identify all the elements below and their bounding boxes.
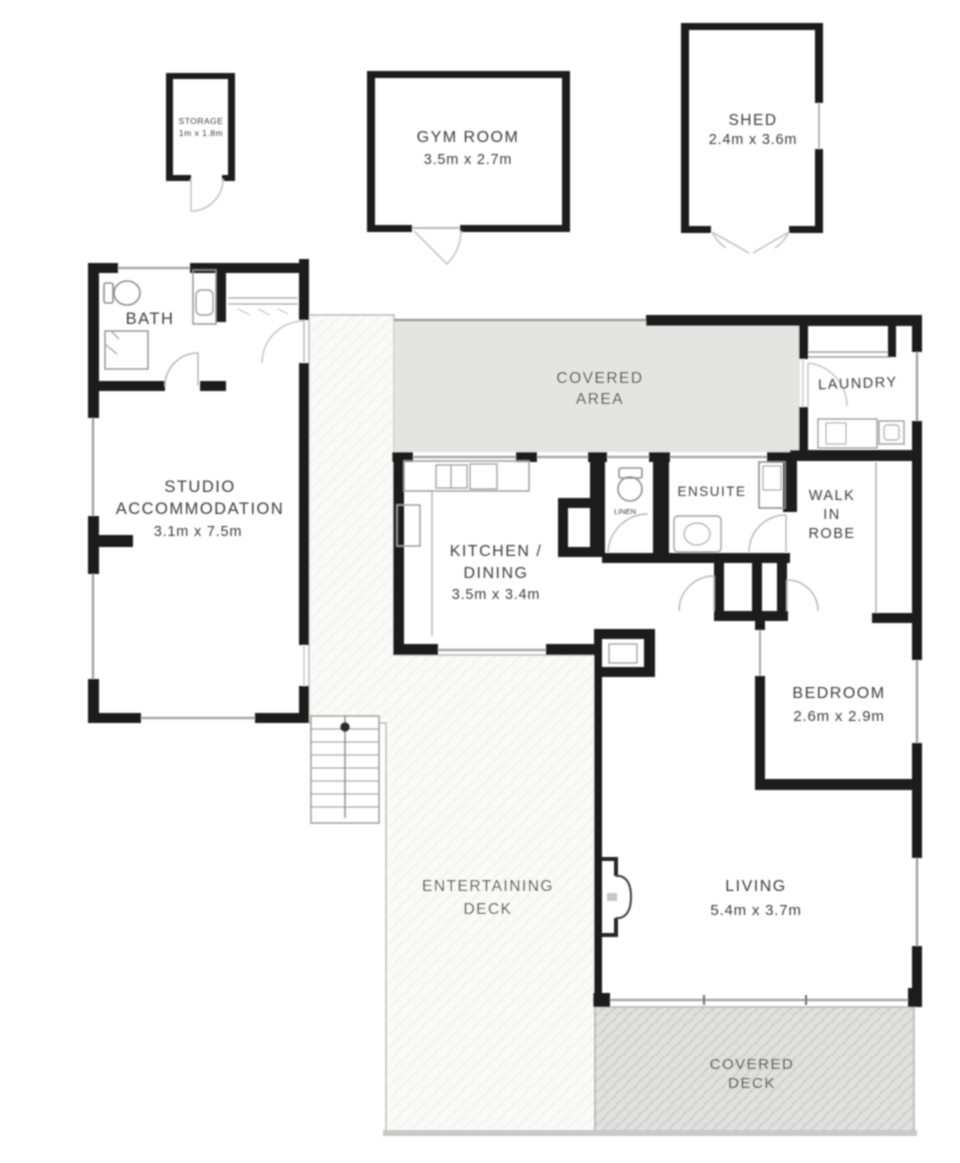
svg-text:DECK: DECK xyxy=(728,1075,776,1092)
svg-text:COVERED: COVERED xyxy=(710,1056,795,1073)
svg-text:5.4m x 3.7m: 5.4m x 3.7m xyxy=(710,902,801,919)
svg-text:2.4m x 3.6m: 2.4m x 3.6m xyxy=(709,132,798,148)
svg-text:DECK: DECK xyxy=(463,901,512,918)
svg-text:BATH: BATH xyxy=(126,310,175,328)
svg-text:ENTERTAINING: ENTERTAINING xyxy=(422,878,554,895)
svg-text:2.6m x 2.9m: 2.6m x 2.9m xyxy=(793,708,884,725)
svg-text:AREA: AREA xyxy=(576,391,624,408)
svg-text:LIVING: LIVING xyxy=(725,878,786,895)
svg-text:3.5m x 2.7m: 3.5m x 2.7m xyxy=(424,152,513,168)
svg-text:ROBE: ROBE xyxy=(808,526,855,542)
svg-text:IN: IN xyxy=(823,507,841,523)
svg-text:ENSUITE: ENSUITE xyxy=(677,484,746,499)
svg-text:1m x 1.8m: 1m x 1.8m xyxy=(179,128,223,138)
svg-text:STUDIO: STUDIO xyxy=(164,478,235,496)
svg-text:KITCHEN /: KITCHEN / xyxy=(450,543,543,560)
svg-text:BEDROOM: BEDROOM xyxy=(792,685,885,702)
svg-text:3.1m x 7.5m: 3.1m x 7.5m xyxy=(154,524,243,540)
svg-text:COVERED: COVERED xyxy=(556,370,643,387)
svg-text:LINEN: LINEN xyxy=(614,507,636,516)
svg-text:LAUNDRY: LAUNDRY xyxy=(818,375,898,394)
svg-text:DINING: DINING xyxy=(464,565,529,582)
svg-text:3.5m x 3.4m: 3.5m x 3.4m xyxy=(452,587,541,603)
svg-text:GYM ROOM: GYM ROOM xyxy=(417,129,520,146)
svg-text:SHED: SHED xyxy=(728,112,777,129)
svg-text:ACCOMMODATION: ACCOMMODATION xyxy=(116,500,285,518)
svg-text:WALK: WALK xyxy=(809,488,856,504)
svg-text:STORAGE: STORAGE xyxy=(179,116,224,126)
